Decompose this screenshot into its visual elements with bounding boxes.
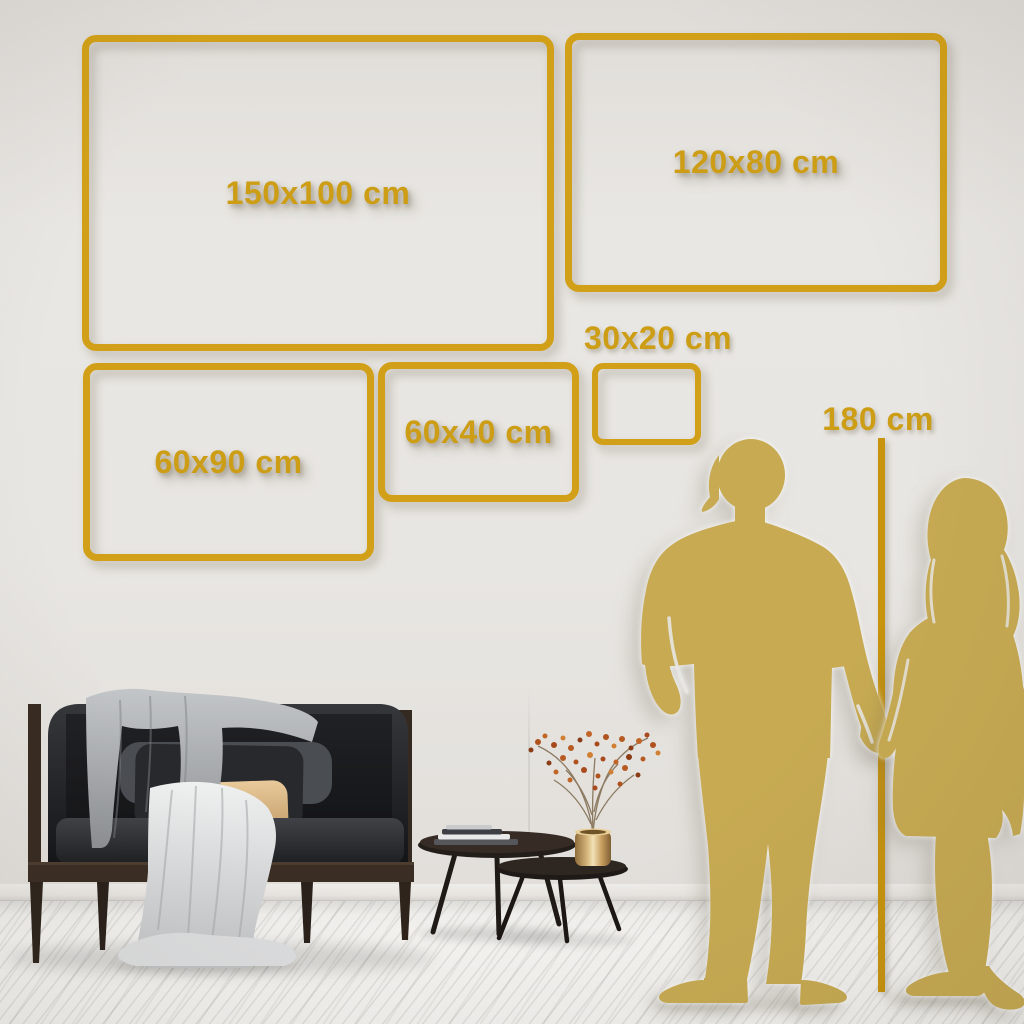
- man-silhouette: [641, 439, 891, 1005]
- size-guide-scene: 150x100 cm 120x80 cm 60x90 cm 60x40 cm 3…: [0, 0, 1024, 1024]
- woman-silhouette: [878, 478, 1024, 1010]
- couple-silhouettes: [0, 0, 1024, 1024]
